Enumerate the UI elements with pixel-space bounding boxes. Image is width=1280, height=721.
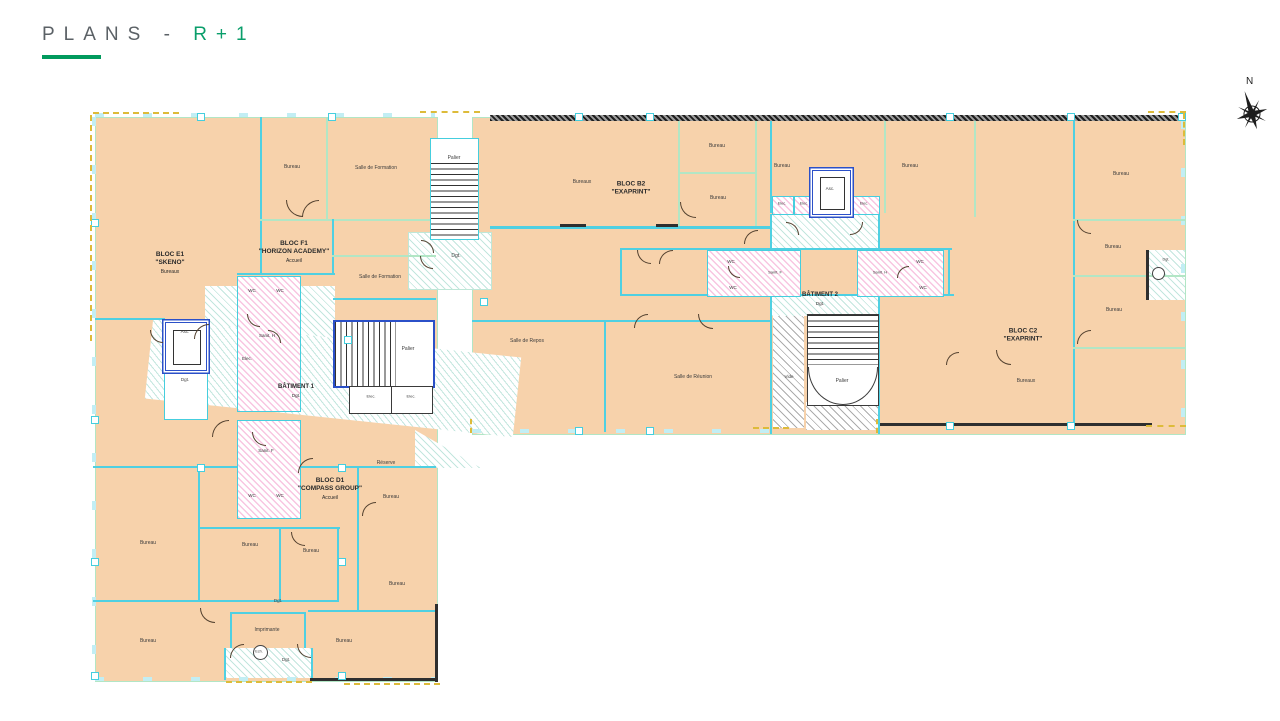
- structural-column: [197, 464, 205, 472]
- room-label-elec: Elec.: [778, 202, 786, 207]
- block-e1-use: Bureaux: [155, 269, 184, 275]
- room-label-ech: Ech.: [255, 650, 263, 655]
- block-f1-use: Accueil: [259, 258, 330, 264]
- stair-treads: [335, 322, 396, 386]
- wall-segment: [472, 320, 772, 322]
- room-label-wc: WC: [276, 493, 284, 499]
- wall-segment: [230, 612, 306, 614]
- room-label-dgt: Dgt.: [282, 657, 290, 663]
- yellow-dash: [93, 112, 179, 114]
- structural-column: [575, 427, 583, 435]
- room-label-wc: WC: [729, 285, 737, 291]
- wall-segment: [308, 610, 436, 612]
- room-label-vide: Vide: [785, 374, 794, 380]
- room-label-bureau: Bureau: [336, 638, 352, 644]
- structural-column: [91, 416, 99, 424]
- structural-column: [91, 219, 99, 227]
- structural-column: [91, 672, 99, 680]
- structural-column: [946, 113, 954, 121]
- room-label-elec: Elec.: [242, 356, 252, 362]
- room-label-bureau: Bureau: [1113, 171, 1129, 177]
- yellow-dash: [753, 427, 789, 429]
- room-label-bureau: Bureau: [1105, 244, 1121, 250]
- block-f1-name: BLOC F1: [259, 240, 330, 248]
- yellow-dash: [344, 683, 440, 685]
- wall-segment: [198, 527, 340, 529]
- room-label-bureau: Bureau: [774, 163, 790, 169]
- wall-segment: [884, 117, 886, 213]
- room-label-bureau: Bureau: [709, 143, 725, 149]
- floor-plan: Bureau Salle de Formation Salle de Forma…: [0, 0, 1280, 721]
- structural-column: [946, 422, 954, 430]
- room-label-imprimante: Imprimante: [254, 627, 279, 633]
- wall-segment: [230, 612, 232, 648]
- structural-column: [197, 113, 205, 121]
- structural-column: [338, 672, 346, 680]
- room-label-reserve: Réserve: [377, 460, 396, 466]
- wall-segment: [620, 248, 702, 250]
- wall-segment: [1146, 250, 1149, 300]
- block-label-f1: BLOC F1 "HORIZON ACADEMY" Accueil: [259, 240, 330, 264]
- void-hatch: [806, 402, 879, 430]
- building-2-name: BÂTIMENT 2: [802, 292, 838, 300]
- wall-segment: [678, 172, 756, 174]
- room-label-bureau: Bureau: [902, 163, 918, 169]
- staircase: [430, 138, 479, 240]
- wall-segment: [880, 423, 1152, 426]
- room-label-sanit-h: Sanit. H: [259, 333, 275, 339]
- yellow-dash: [876, 419, 878, 433]
- void-hatch: [773, 316, 804, 428]
- wall-segment: [310, 678, 437, 681]
- wall-segment: [948, 248, 950, 296]
- room-label-wc: WC: [916, 259, 924, 265]
- room-label-asc: Asc.: [181, 329, 190, 335]
- block-c2-tenant: "EXAPRINT": [1003, 336, 1042, 344]
- room-label-bureau: Bureau: [303, 548, 319, 554]
- room-label-salle-formation: Salle de Formation: [359, 274, 401, 280]
- closet-divider: [391, 387, 392, 413]
- room-label-dgt: Dgt.: [451, 253, 460, 259]
- building-1-name: BÂTIMENT 1: [278, 384, 314, 392]
- wall-segment: [1073, 275, 1185, 277]
- room-label-wc: WC: [727, 259, 735, 265]
- room-label-wc: WC: [248, 288, 256, 294]
- wall-segment: [755, 117, 757, 227]
- exterior-wall-hatched: [490, 115, 1185, 121]
- block-label-e1: BLOC E1 "SKENO" Bureaux: [155, 251, 184, 275]
- room-label-salle-repos: Salle de Repos: [510, 338, 544, 344]
- structural-column: [480, 298, 488, 306]
- room-label-bureau: Bureau: [140, 638, 156, 644]
- structural-column: [338, 558, 346, 566]
- staircase: [333, 320, 435, 388]
- circulation-hatch-wedge: [415, 430, 481, 468]
- wall-segment: [1073, 117, 1075, 427]
- building-2-dgt: Dgt.: [802, 301, 838, 306]
- block-c2-name: BLOC C2: [1003, 328, 1042, 336]
- wall-segment: [304, 612, 306, 648]
- room-label-wc: WC: [248, 493, 256, 499]
- wall-segment: [93, 600, 339, 602]
- building-1-label: BÂTIMENT 1 Dgt.: [278, 384, 314, 398]
- building-1-dgt: Dgt.: [278, 393, 314, 398]
- yellow-dash: [420, 111, 480, 113]
- block-e1-name: BLOC E1: [155, 251, 184, 259]
- wall-segment: [656, 224, 678, 227]
- wall-segment: [260, 219, 436, 221]
- room-label-salle-formation: Salle de Formation: [355, 165, 397, 171]
- compass-rose-icon: N: [1227, 72, 1273, 136]
- wall-segment: [604, 320, 606, 432]
- staircase: [807, 314, 879, 406]
- room-label-dgt: Dgt.: [181, 377, 189, 383]
- block-b2-name: BLOC B2: [611, 181, 650, 189]
- yellow-dash: [470, 419, 472, 433]
- structural-column: [91, 558, 99, 566]
- block-f1-tenant: "HORIZON ACADEMY": [259, 249, 330, 257]
- room-label-sanit-h: Sanit. H: [873, 270, 887, 275]
- elec-closets: [349, 386, 433, 414]
- room-label-wc: WC: [276, 288, 284, 294]
- yellow-dash: [90, 115, 92, 341]
- sanitary-block: [237, 420, 301, 519]
- wall-segment: [224, 648, 226, 680]
- structural-column: [646, 113, 654, 121]
- structural-column: [338, 464, 346, 472]
- block-label-d1: BLOC D1 "COMPASS GROUP" Accueil: [298, 477, 362, 501]
- block-b2-tenant: "EXAPRINT": [611, 189, 650, 197]
- room-label-elec: Elec.: [367, 394, 376, 399]
- compass-star: [1229, 86, 1272, 134]
- structural-column: [1067, 113, 1075, 121]
- windows-strip: [1181, 120, 1185, 420]
- room-label-elec: Elec.: [860, 202, 868, 207]
- room-label-bureaux: Bureaux: [573, 179, 592, 185]
- block-d1-use: Accueil: [298, 495, 362, 501]
- symbol-circle: [1152, 267, 1165, 280]
- wall-segment: [332, 219, 334, 275]
- wall-segment: [333, 298, 436, 300]
- block-label-b2: BLOC B2 "EXAPRINT": [611, 181, 650, 198]
- wall-segment: [560, 224, 586, 227]
- block-d1-name: BLOC D1: [298, 477, 362, 485]
- block-label-c2: BLOC C2 "EXAPRINT": [1003, 328, 1042, 345]
- wall-segment: [620, 248, 622, 296]
- room-label-sanit-f: Sanit. F: [258, 448, 274, 454]
- room-label-dgt: Dgt.: [1163, 258, 1170, 263]
- building-2-label: BÂTIMENT 2 Dgt.: [802, 292, 838, 306]
- structural-column: [344, 336, 352, 344]
- room-label-wc: WC: [919, 285, 927, 291]
- stair-treads: [431, 163, 478, 239]
- yellow-dash: [226, 681, 312, 683]
- room-label-bureau: Bureau: [710, 195, 726, 201]
- wall-segment: [198, 466, 200, 602]
- stair-treads: [808, 315, 878, 365]
- wall-segment: [326, 117, 328, 221]
- room-label-elec: Elec.: [800, 202, 808, 207]
- room-label-elec: Elec.: [407, 394, 416, 399]
- windows-strip: [92, 117, 96, 677]
- elevator-cab: [820, 177, 846, 210]
- room-label-bureau: Bureau: [284, 164, 300, 170]
- room-label-bureaux: Bureaux: [1017, 378, 1036, 384]
- room-label-palier: Palier: [448, 155, 461, 161]
- room-label-dgt: Dgt.: [274, 598, 282, 604]
- structural-column: [1067, 422, 1075, 430]
- room-label-bureau: Bureau: [389, 581, 405, 587]
- room-label-salle-reunion: Salle de Réunion: [674, 374, 712, 380]
- structural-column: [646, 427, 654, 435]
- wall-segment: [311, 648, 313, 680]
- block-d1-tenant: "COMPASS GROUP": [298, 486, 362, 494]
- wall-segment: [490, 226, 772, 229]
- yellow-dash: [1146, 425, 1186, 427]
- wall-segment: [435, 604, 438, 682]
- compass-north-label: N: [1246, 76, 1253, 87]
- room-label-asc: Asc.: [826, 186, 835, 192]
- wall-segment: [770, 214, 772, 434]
- room-label-palier: Palier: [402, 346, 415, 352]
- room-label-bureau: Bureau: [140, 540, 156, 546]
- elevator: [812, 170, 851, 215]
- wall-segment: [237, 273, 335, 275]
- windows-strip: [472, 429, 772, 433]
- sanitary-block: [707, 250, 801, 297]
- stair-landing: [808, 367, 878, 405]
- room-label-bureau: Bureau: [1106, 307, 1122, 313]
- structural-column: [328, 113, 336, 121]
- wall-segment: [279, 527, 281, 602]
- yellow-dash: [1183, 113, 1185, 145]
- room-label-bureau: Bureau: [242, 542, 258, 548]
- yellow-dash: [1148, 111, 1186, 113]
- room-label-bureau: Bureau: [383, 494, 399, 500]
- wall-segment: [1073, 347, 1185, 349]
- block-e1-tenant: "SKENO": [155, 260, 184, 268]
- wall-segment: [974, 117, 976, 217]
- structural-column: [575, 113, 583, 121]
- wall-segment: [95, 318, 165, 320]
- room-label-palier: Palier: [836, 378, 849, 384]
- room-label-sanit-f: Sanit. F: [768, 270, 782, 275]
